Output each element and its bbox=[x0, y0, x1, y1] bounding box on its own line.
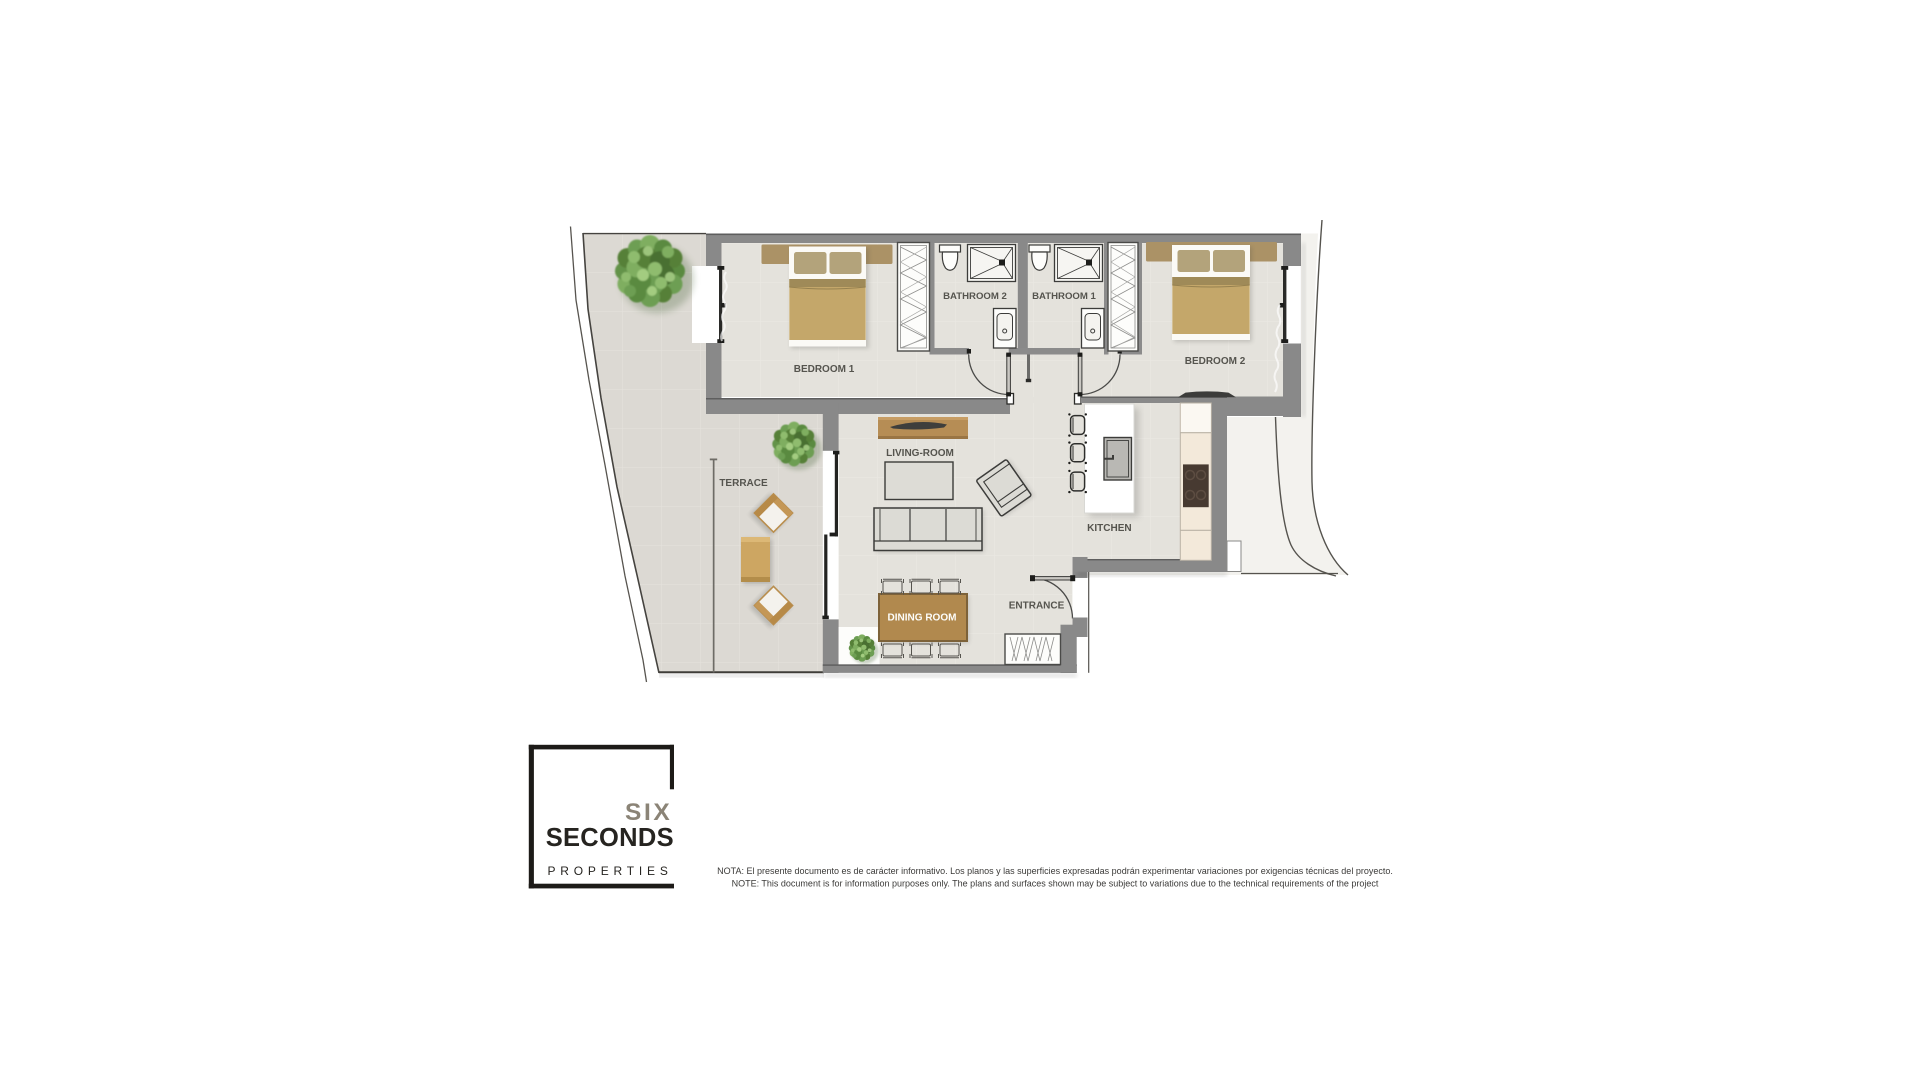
svg-text:LIVING-ROOM: LIVING-ROOM bbox=[886, 448, 954, 459]
svg-text:SECONDS: SECONDS bbox=[546, 824, 674, 852]
svg-text:BEDROOM 2: BEDROOM 2 bbox=[1185, 356, 1246, 367]
svg-text:BATHROOM 2: BATHROOM 2 bbox=[943, 291, 1007, 302]
svg-text:BATHROOM 1: BATHROOM 1 bbox=[1032, 291, 1096, 302]
svg-text:DINING ROOM: DINING ROOM bbox=[888, 613, 957, 624]
svg-text:PROPERTIES: PROPERTIES bbox=[548, 864, 673, 878]
svg-text:ENTRANCE: ENTRANCE bbox=[1009, 601, 1065, 612]
svg-text:NOTA: El presente documento es: NOTA: El presente documento es de caráct… bbox=[717, 866, 1393, 876]
svg-text:BEDROOM 1: BEDROOM 1 bbox=[794, 364, 855, 375]
svg-text:NOTE: This document is for inf: NOTE: This document is for information p… bbox=[732, 878, 1379, 888]
svg-text:SIX: SIX bbox=[625, 799, 672, 826]
svg-text:TERRACE: TERRACE bbox=[719, 478, 768, 489]
svg-text:KITCHEN: KITCHEN bbox=[1087, 523, 1131, 534]
